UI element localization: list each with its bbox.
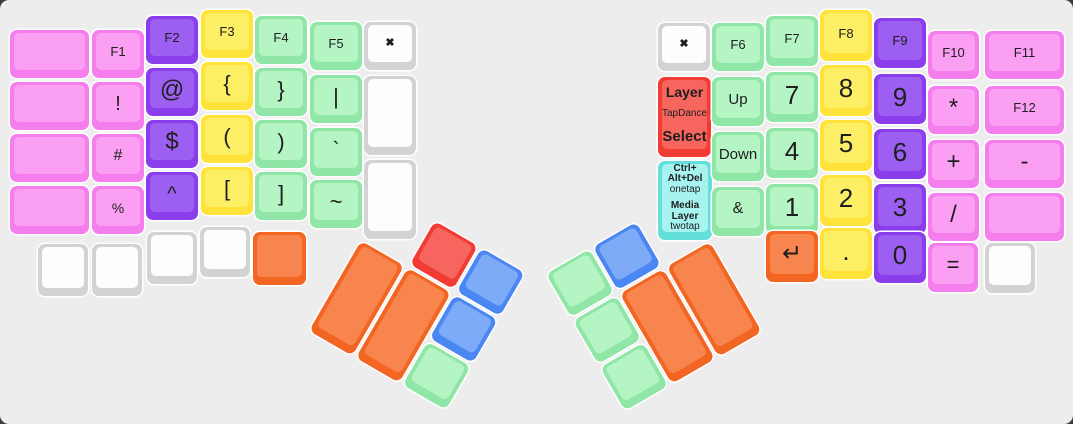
keycap-face: *	[932, 89, 975, 126]
keycap-face: 2	[824, 178, 868, 218]
keycap-face: F5	[314, 25, 358, 62]
key-f6[interactable]: F6	[712, 23, 764, 71]
key-f11[interactable]: F11	[985, 31, 1064, 79]
keycap-face	[417, 226, 473, 281]
key-legend: F2	[164, 31, 179, 44]
key-legend: F7	[784, 32, 799, 45]
keycap-face: $	[150, 123, 194, 160]
key-blank-l0-r1[interactable]	[10, 30, 89, 78]
key-legend-line: Alt+Del	[668, 174, 703, 185]
keycap-face: Ctrl+Alt+DelonetapMediaLayertwotap	[662, 164, 708, 232]
key-num0[interactable]: 0	[874, 232, 926, 283]
keycap-face: F10	[932, 34, 975, 71]
keycap-face: ~	[314, 183, 358, 220]
keycap-face	[368, 163, 412, 231]
keycap-face: /	[932, 196, 975, 233]
keycap-face	[204, 230, 246, 269]
keycap-face: 3	[878, 187, 922, 226]
keycap-face: LayerTapDanceSelect	[662, 80, 707, 149]
key-legend: *	[949, 96, 958, 120]
keycap-face: ]	[259, 175, 303, 212]
key-legend: 3	[893, 194, 907, 220]
key-num5[interactable]: 5	[820, 120, 872, 171]
keycap-face	[551, 254, 607, 309]
key-legend: +	[946, 150, 960, 174]
keycap-face: }	[259, 71, 303, 108]
keycap-face: F11	[989, 34, 1060, 71]
keycap-face: Down	[716, 135, 760, 173]
key-legend: 6	[893, 139, 907, 165]
key-legend: %	[112, 201, 124, 215]
key-legend: !	[115, 94, 121, 114]
key-legend: [	[224, 178, 230, 200]
keycap-face: F4	[259, 19, 303, 56]
key-legend: F6	[730, 38, 745, 51]
key-dollar[interactable]: $	[146, 120, 198, 168]
keycap-face: +	[932, 143, 975, 180]
key-legend: /	[950, 203, 957, 227]
keycap-face	[605, 347, 661, 402]
keycap-face: 5	[824, 123, 868, 163]
key-rbrace[interactable]: }	[255, 68, 307, 116]
key-close-left[interactable]: ✖	[364, 22, 416, 70]
keycap-face: ^	[150, 175, 194, 212]
key-lbrace[interactable]: {	[201, 62, 253, 110]
keycap-face: ✖	[368, 25, 412, 62]
key-at[interactable]: @	[146, 68, 198, 116]
keycap-face: `	[314, 131, 358, 168]
key-num6[interactable]: 6	[874, 129, 926, 179]
key-legend: -	[1021, 150, 1029, 174]
key-f8[interactable]: F8	[820, 10, 872, 61]
keycap-face: )	[259, 123, 303, 160]
keycap-face	[578, 300, 634, 355]
key-lparen[interactable]: (	[201, 115, 253, 163]
key-legend: F12	[1013, 101, 1035, 114]
keycap-face: {	[205, 65, 249, 102]
key-blank-l-bottom2[interactable]	[92, 244, 142, 296]
keycap-face	[14, 137, 85, 174]
key-legend-line: Layer	[666, 87, 703, 98]
key-ampersand[interactable]: &	[712, 187, 764, 236]
keycap-face: 6	[878, 132, 922, 171]
key-enter[interactable]: ↵	[766, 231, 818, 282]
key-legend: @	[160, 78, 184, 102]
key-num1[interactable]: 1	[766, 184, 818, 234]
key-f3[interactable]: F3	[201, 10, 253, 58]
key-f5[interactable]: F5	[310, 22, 362, 70]
keycap-face: Up	[716, 80, 760, 118]
keycap-face: F8	[824, 13, 868, 53]
keycap-face: F1	[96, 33, 140, 70]
key-legend-line: TapDance	[662, 109, 707, 120]
key-legend: ✖	[679, 39, 688, 50]
key-legend: ↵	[782, 242, 802, 266]
key-period[interactable]: .	[820, 228, 872, 279]
keycap-face: 8	[824, 68, 868, 108]
key-rparen[interactable]: )	[255, 120, 307, 168]
key-blank-r0-r4[interactable]	[985, 193, 1064, 241]
keycap-face	[14, 189, 85, 226]
keycap-face	[598, 227, 654, 282]
keycap-face	[257, 235, 302, 277]
key-legend: .	[842, 238, 849, 264]
key-blank-l-bottom3[interactable]	[147, 232, 197, 284]
keycap-face: [	[205, 170, 249, 207]
key-f9[interactable]: F9	[874, 18, 926, 68]
key-backtick[interactable]: `	[310, 128, 362, 176]
key-legend: 0	[893, 242, 907, 268]
key-legend: $	[165, 130, 178, 154]
keycap-face: ✖	[662, 26, 706, 63]
keycap-face: F12	[989, 89, 1060, 126]
key-layer-tapdance-select[interactable]: LayerTapDanceSelect	[658, 77, 711, 157]
key-minus[interactable]: -	[985, 140, 1064, 188]
key-blank-r-bottom[interactable]	[985, 243, 1035, 293]
key-num8[interactable]: 8	[820, 65, 872, 116]
keycap-face: F7	[770, 19, 814, 58]
key-f12[interactable]: F12	[985, 86, 1064, 134]
key-legend: (	[223, 126, 230, 148]
key-plus[interactable]: +	[928, 140, 979, 188]
key-legend: F11	[1014, 46, 1035, 59]
key-legend: ^	[167, 184, 176, 204]
keycap-face: F9	[878, 21, 922, 60]
key-legend: F5	[328, 37, 343, 50]
key-rbracket[interactable]: ]	[255, 172, 307, 220]
key-legend: Up	[728, 92, 747, 107]
key-legend: 1	[785, 194, 799, 220]
key-slash[interactable]: /	[928, 193, 979, 241]
key-legend-line: Media	[671, 201, 699, 212]
key-blank-l-inner-tall2[interactable]	[364, 160, 416, 239]
key-blank-l0-r2[interactable]	[10, 82, 89, 130]
keycap-face: .	[824, 231, 868, 271]
keycap-face: (	[205, 118, 249, 155]
key-blank-l0-r4[interactable]	[10, 186, 89, 234]
key-blank-l-bottom1[interactable]	[38, 244, 88, 296]
key-legend: }	[277, 79, 284, 101]
keycap-face	[42, 247, 84, 288]
key-legend-line: onetap	[670, 185, 701, 196]
key-down[interactable]: Down	[712, 132, 764, 181]
key-legend: Down	[719, 147, 757, 162]
keycap-face: -	[989, 143, 1060, 180]
key-num4[interactable]: 4	[766, 128, 818, 178]
key-f4[interactable]: F4	[255, 16, 307, 64]
key-num9[interactable]: 9	[874, 74, 926, 124]
key-legend: 2	[839, 185, 853, 211]
keycap-face: |	[314, 78, 358, 115]
key-legend: =	[947, 254, 960, 276]
keycap-face: 4	[770, 131, 814, 170]
key-blank-l-bottom4[interactable]	[200, 227, 250, 277]
key-legend: F9	[892, 34, 907, 47]
key-pipe[interactable]: |	[310, 75, 362, 123]
key-legend: F3	[219, 25, 234, 38]
key-legend-line: twotap	[670, 222, 699, 233]
key-legend: F10	[942, 46, 964, 59]
key-lbracket[interactable]: [	[201, 167, 253, 215]
key-exclaim[interactable]: !	[92, 82, 144, 130]
key-legend-line: Select	[662, 132, 706, 143]
key-ctrl-alt-del-media-layer[interactable]: Ctrl+Alt+DelonetapMediaLayertwotap	[658, 161, 712, 240]
key-f10[interactable]: F10	[928, 31, 979, 79]
key-legend: ]	[278, 183, 284, 205]
key-legend: F4	[273, 31, 288, 44]
key-legend: ✖	[385, 38, 394, 49]
key-legend: ~	[330, 191, 343, 213]
key-f2[interactable]: F2	[146, 16, 198, 64]
keycap-face: 9	[878, 77, 922, 116]
key-legend: {	[223, 73, 230, 95]
keycap-face	[989, 246, 1031, 285]
keycap-face	[368, 79, 412, 147]
key-legend: 7	[785, 82, 799, 108]
key-tilde[interactable]: ~	[310, 180, 362, 228]
keycap-face	[14, 33, 85, 70]
key-legend: |	[333, 86, 339, 108]
keycap-face: 7	[770, 75, 814, 114]
keyboard-board: F1!#%F2@$^F3{([F4})]F5|`~✖✖LayerTapDance…	[0, 0, 1073, 424]
key-asterisk[interactable]: *	[928, 86, 979, 134]
keycap-face: #	[96, 137, 140, 174]
keycap-face	[151, 235, 193, 276]
keycap-face: ↵	[770, 234, 814, 274]
keycap-face	[14, 85, 85, 122]
key-legend: F8	[838, 27, 853, 40]
key-hash[interactable]: #	[92, 134, 144, 182]
keycap-face: !	[96, 85, 140, 122]
key-num2[interactable]: 2	[820, 175, 872, 226]
keycap-face: =	[932, 246, 974, 284]
key-blank-l-inner-tall1[interactable]	[364, 76, 416, 155]
key-blank-l-bottom5[interactable]	[253, 232, 306, 285]
key-legend: #	[114, 148, 123, 164]
keycap-face: @	[150, 71, 194, 108]
key-blank-l0-r3[interactable]	[10, 134, 89, 182]
keycap-face: 1	[770, 187, 814, 226]
keycap-face	[96, 247, 138, 288]
key-legend: `	[332, 139, 339, 161]
key-legend: 4	[785, 138, 799, 164]
key-legend: 5	[839, 130, 853, 156]
key-num3[interactable]: 3	[874, 184, 926, 234]
key-legend: )	[277, 131, 284, 153]
key-num7[interactable]: 7	[766, 72, 818, 122]
key-up[interactable]: Up	[712, 77, 764, 126]
keycap-face: %	[96, 189, 140, 226]
keycap-face: &	[716, 190, 760, 228]
keycap-face: 0	[878, 235, 922, 275]
key-legend: 9	[893, 84, 907, 110]
keycap-face: F6	[716, 26, 760, 63]
keycap-face	[989, 196, 1060, 233]
key-close-right[interactable]: ✖	[658, 23, 710, 71]
key-legend: F1	[110, 45, 125, 58]
key-f1[interactable]: F1	[92, 30, 144, 78]
key-percent[interactable]: %	[92, 186, 144, 234]
keycap-face: F3	[205, 13, 249, 50]
key-legend: &	[733, 201, 744, 217]
key-equals[interactable]: =	[928, 243, 978, 292]
key-legend: 8	[839, 75, 853, 101]
key-f7[interactable]: F7	[766, 16, 818, 66]
key-caret[interactable]: ^	[146, 172, 198, 220]
keycap-face	[464, 253, 520, 308]
keycap-face: F2	[150, 19, 194, 56]
